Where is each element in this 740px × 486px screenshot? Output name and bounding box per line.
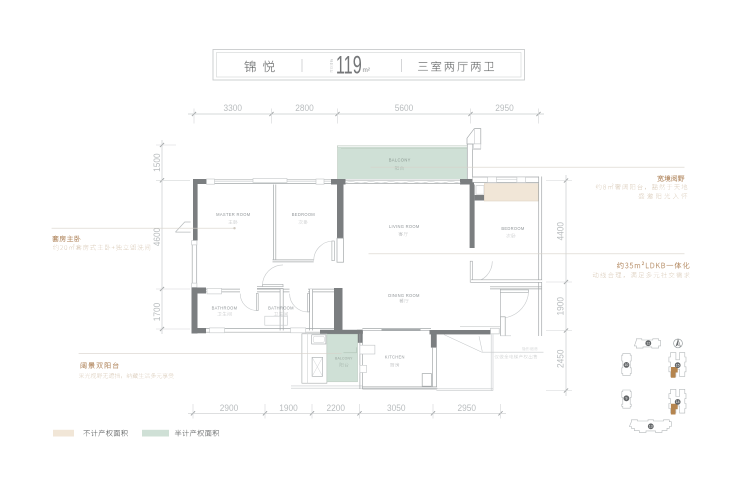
- svg-text:BATHROOM: BATHROOM: [268, 305, 294, 310]
- svg-text:1900: 1900: [279, 403, 298, 413]
- svg-text:2800: 2800: [295, 103, 314, 113]
- svg-text:12: 12: [646, 341, 650, 345]
- svg-text:2950: 2950: [458, 403, 477, 413]
- svg-text:2200: 2200: [327, 403, 346, 413]
- svg-text:15: 15: [676, 363, 680, 367]
- svg-text:2450: 2450: [555, 350, 565, 369]
- svg-text:BEDROOM: BEDROOM: [501, 226, 525, 231]
- svg-text:5600: 5600: [395, 103, 414, 113]
- svg-text:9: 9: [625, 397, 627, 401]
- svg-text:MASTER ROOM: MASTER ROOM: [216, 212, 251, 217]
- svg-text:1500: 1500: [152, 153, 162, 172]
- svg-text:1700: 1700: [152, 303, 162, 322]
- svg-text:BALCONY: BALCONY: [389, 157, 411, 162]
- svg-text:KITCHEN: KITCHEN: [385, 354, 405, 359]
- svg-text:4600: 4600: [152, 228, 162, 247]
- svg-text:13: 13: [649, 425, 653, 429]
- svg-text:4400: 4400: [555, 222, 565, 241]
- svg-text:BALCONY: BALCONY: [335, 357, 353, 361]
- svg-text:14: 14: [676, 400, 680, 404]
- svg-text:2900: 2900: [220, 403, 239, 413]
- svg-text:119: 119: [336, 52, 362, 79]
- svg-text:BEDROOM: BEDROOM: [292, 212, 316, 217]
- svg-text:1900: 1900: [555, 297, 565, 316]
- svg-text:3300: 3300: [224, 103, 243, 113]
- svg-text:m²: m²: [363, 67, 370, 74]
- svg-text:BATHROOM: BATHROOM: [212, 305, 238, 310]
- svg-text:3050: 3050: [387, 403, 406, 413]
- svg-text:DINING ROOM: DINING ROOM: [388, 293, 420, 298]
- svg-text:10: 10: [625, 363, 629, 367]
- svg-text:2950: 2950: [495, 103, 514, 113]
- svg-text:LIVING ROOM: LIVING ROOM: [389, 224, 420, 229]
